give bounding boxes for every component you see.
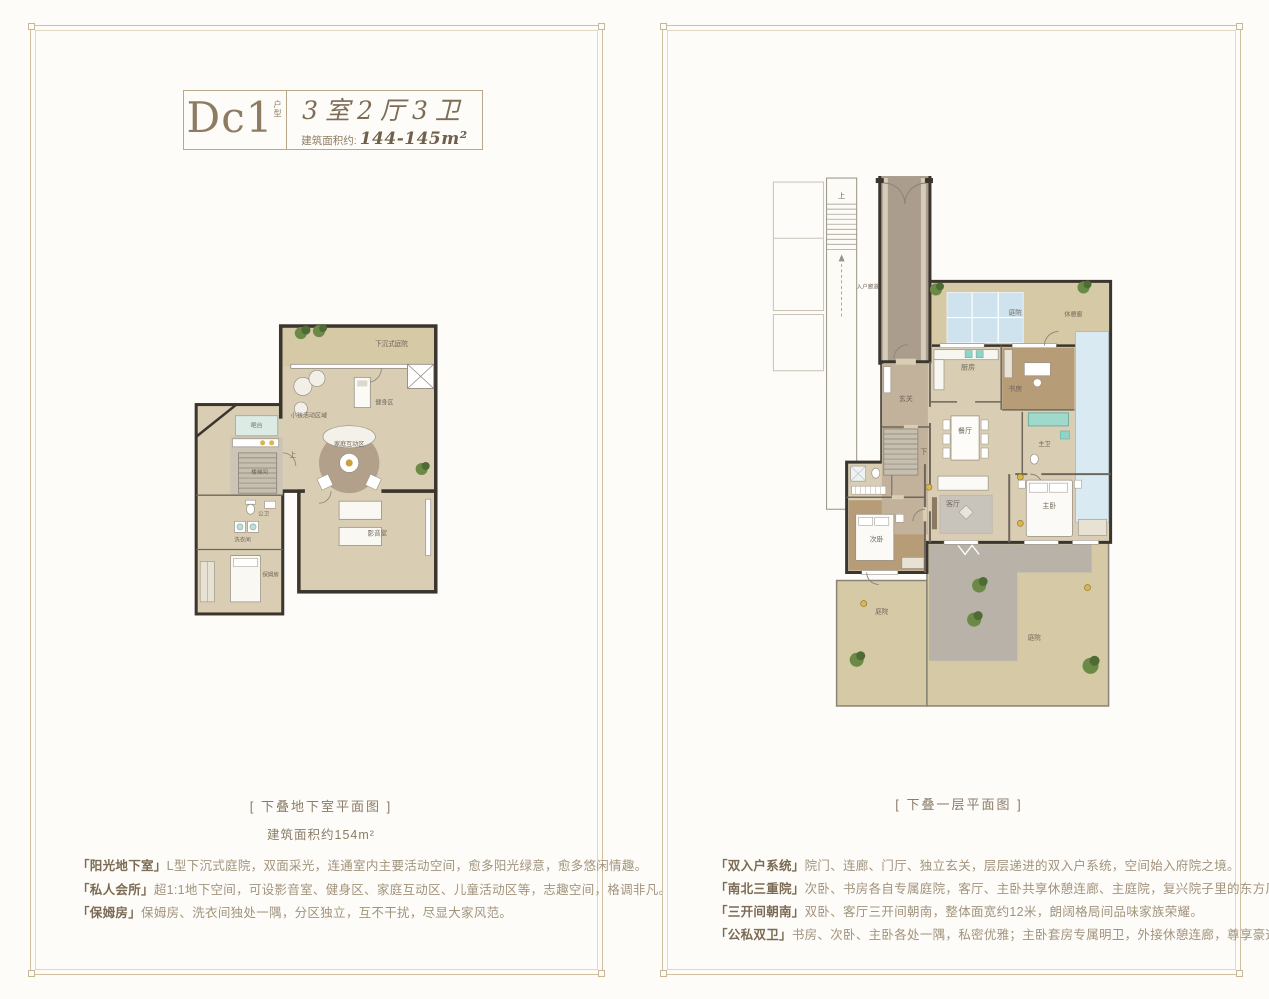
stair-up-label: 上 [290, 450, 297, 459]
rest-corridor-strip [1075, 332, 1108, 523]
frame-corner [660, 23, 667, 30]
room-label-bar: 吧台 [251, 422, 263, 430]
frame-corner [598, 23, 605, 30]
dining-furniture [943, 416, 988, 460]
family-zone-furniture [317, 426, 381, 493]
room-label-dining: 餐厅 [958, 426, 972, 435]
room-label-second-bedroom: 次卧 [870, 534, 884, 543]
room-label-av-room: 影音室 [368, 528, 388, 537]
feature-text: L型下沉式庭院，双面采光，连通室内主要活动空间，愈多阳光绿意，愈多悠闲情趣。 [167, 859, 648, 873]
room-label-stair-hall: 楼梯间 [251, 468, 268, 476]
first-floor-plan: 上 入户廊道 庭院 休憩廊 厨房 书房 玄关 餐厅 主卫 下 客厅 主卧 次卧 … [771, 166, 1118, 718]
foyer-cabinet [884, 367, 891, 393]
room-label-study: 书房 [1008, 384, 1022, 393]
room-label-nanny: 保姆房 [262, 571, 279, 579]
room-label-kids-zone: 小孩活动区域 [291, 412, 327, 420]
first-floor-caption-title: [ 下叠一层平面图 ] [759, 794, 1159, 813]
room-label-foyer: 玄关 [899, 394, 913, 403]
feature-line: 「三开间朝南」双卧、客厅三开间朝南，整体面宽约12米，朗阔格局间品味家族荣耀。 [715, 901, 1225, 924]
frame-corner [598, 970, 605, 977]
feature-line: 「双入户系统」院门、连廊、门厅、独立玄关，层层递进的双入户系统，空间始入府院之境… [715, 855, 1225, 878]
feature-text: 超1:1地下空间，可设影音室、健身区、家庭互动区、儿童活动区等，志趣空间，格调非… [154, 883, 671, 897]
nanny-room-furniture [200, 556, 260, 602]
feature-line: 「南北三重院」次卧、书房各自专属庭院，客厅、主卧共享休憩连廊、主庭院，复兴院子里… [715, 878, 1225, 901]
bar-counter [232, 416, 278, 447]
room-label-rest-corridor: 休憩廊 [1064, 311, 1082, 319]
feature-title: 「三开间朝南」 [715, 905, 805, 919]
room-label-north-courtyard: 庭院 [1009, 308, 1023, 317]
room-label-entry-corridor: 入户廊道 [857, 282, 880, 290]
unit-area-value: 144-145m² [360, 129, 468, 149]
basement-floor-plan: 下沉式庭院 小孩活动区域 健身区 家庭互动区 吧台 楼梯间 上 公卫 洗衣间 保… [190, 320, 452, 622]
basement-caption-area: 建筑面积约154m² [121, 824, 521, 843]
entry-corridor [876, 176, 933, 365]
room-label-master-bedroom: 主卧 [1042, 501, 1056, 510]
feature-text: 次卧、书房各自专属庭院，客厅、主卧共享休憩连廊、主庭院，复兴院子里的东方风雅。 [805, 882, 1269, 896]
room-label-sunken-courtyard: 下沉式庭院 [375, 339, 408, 348]
unit-code-cell: Dc1 户型 [184, 91, 287, 149]
room-label-fitness: 健身区 [375, 399, 393, 407]
frame-corner [1236, 970, 1243, 977]
feature-text: 院门、连廊、门厅、独立玄关，层层递进的双入户系统，空间始入府院之境。 [805, 859, 1240, 873]
unit-header: Dc1 户型 3室2厅3卫 建筑面积约: 144-145m² [183, 90, 483, 150]
feature-line: 「保姆房」保姆房、洗衣间独处一隅，分区独立，互不干扰，尽显大家风范。 [77, 902, 577, 926]
basement-feature-list: 「阳光地下室」L型下沉式庭院，双面采光，连通室内主要活动空间，愈多阳光绿意，愈多… [77, 855, 577, 926]
room-label-laundry: 洗衣间 [234, 535, 251, 543]
basement-panel: Dc1 户型 3室2厅3卫 建筑面积约: 144-145m² [30, 25, 603, 975]
room-label-living: 客厅 [946, 499, 960, 508]
first-floor-feature-list: 「双入户系统」院门、连廊、门厅、独立玄关，层层递进的双入户系统，空间始入府院之境… [715, 855, 1225, 947]
frame-corner [28, 970, 35, 977]
stairs-down [884, 429, 918, 475]
basement-caption: [ 下叠地下室平面图 ] 建筑面积约154m² [121, 796, 521, 843]
unit-area-label: 建筑面积约: [301, 133, 356, 148]
feature-text: 双卧、客厅三开间朝南，整体面宽约12米，朗阔格局间品味家族荣耀。 [805, 905, 1204, 919]
room-label-family-zone: 家庭互动区 [334, 440, 364, 448]
room-label-south-courtyard: 庭院 [1028, 633, 1042, 642]
feature-text: 保姆房、洗衣间独处一隅，分区独立，互不干扰，尽显大家风范。 [141, 906, 512, 920]
feature-line: 「公私双卫」书房、次卧、主卧各处一隅，私密优雅；主卧套房专属明卫，外接休憩连廊，… [715, 924, 1225, 947]
feature-title: 「阳光地下室」 [77, 859, 167, 873]
feature-title: 「南北三重院」 [715, 882, 805, 896]
room-label-west-courtyard: 庭院 [875, 607, 889, 616]
frame-corner [660, 970, 667, 977]
first-floor-panel: 上 入户廊道 庭院 休憩廊 厨房 书房 玄关 餐厅 主卫 下 客厅 主卧 次卧 … [662, 25, 1241, 975]
unit-type-tag: 户型 [273, 100, 283, 118]
unit-layout: 3室2厅3卫 [302, 91, 467, 127]
floorplan-brochure-page: { "colors":{ "frame":"#c9b695","accent_b… [0, 0, 1269, 999]
feature-title: 「双入户系统」 [715, 859, 805, 873]
feature-title: 「私人会所」 [77, 883, 154, 897]
basement-caption-title: [ 下叠地下室平面图 ] [121, 796, 521, 815]
feature-line: 「阳光地下室」L型下沉式庭院，双面采光，连通室内主要活动空间，愈多阳光绿意，愈多… [77, 855, 577, 879]
stair-up-label: 上 [838, 191, 845, 200]
living-furniture [932, 476, 992, 533]
room-label-master-bath: 主卫 [1038, 440, 1050, 448]
feature-title: 「公私双卫」 [715, 928, 792, 942]
unit-code: Dc1 [187, 95, 274, 141]
unit-area: 建筑面积约: 144-145m² [301, 129, 467, 149]
frame-corner [1236, 23, 1243, 30]
room-label-public-wc: 公卫 [258, 510, 270, 517]
feature-line: 「私人会所」超1:1地下空间，可设影音室、健身区、家庭互动区、儿童活动区等，志趣… [77, 879, 577, 903]
entry-staircase [827, 178, 857, 509]
feature-title: 「保姆房」 [77, 906, 141, 920]
neighbor-outline [773, 182, 823, 371]
feature-text: 书房、次卧、主卧各处一隅，私密优雅；主卧套房专属明卫，外接休憩连廊，尊享豪迈气度… [792, 928, 1269, 942]
frame-corner [28, 23, 35, 30]
unit-info: 3室2厅3卫 建筑面积约: 144-145m² [287, 91, 482, 149]
first-floor-caption: [ 下叠一层平面图 ] [759, 794, 1159, 813]
stair-down-label: 下 [920, 448, 927, 456]
room-label-kitchen: 厨房 [961, 363, 975, 372]
